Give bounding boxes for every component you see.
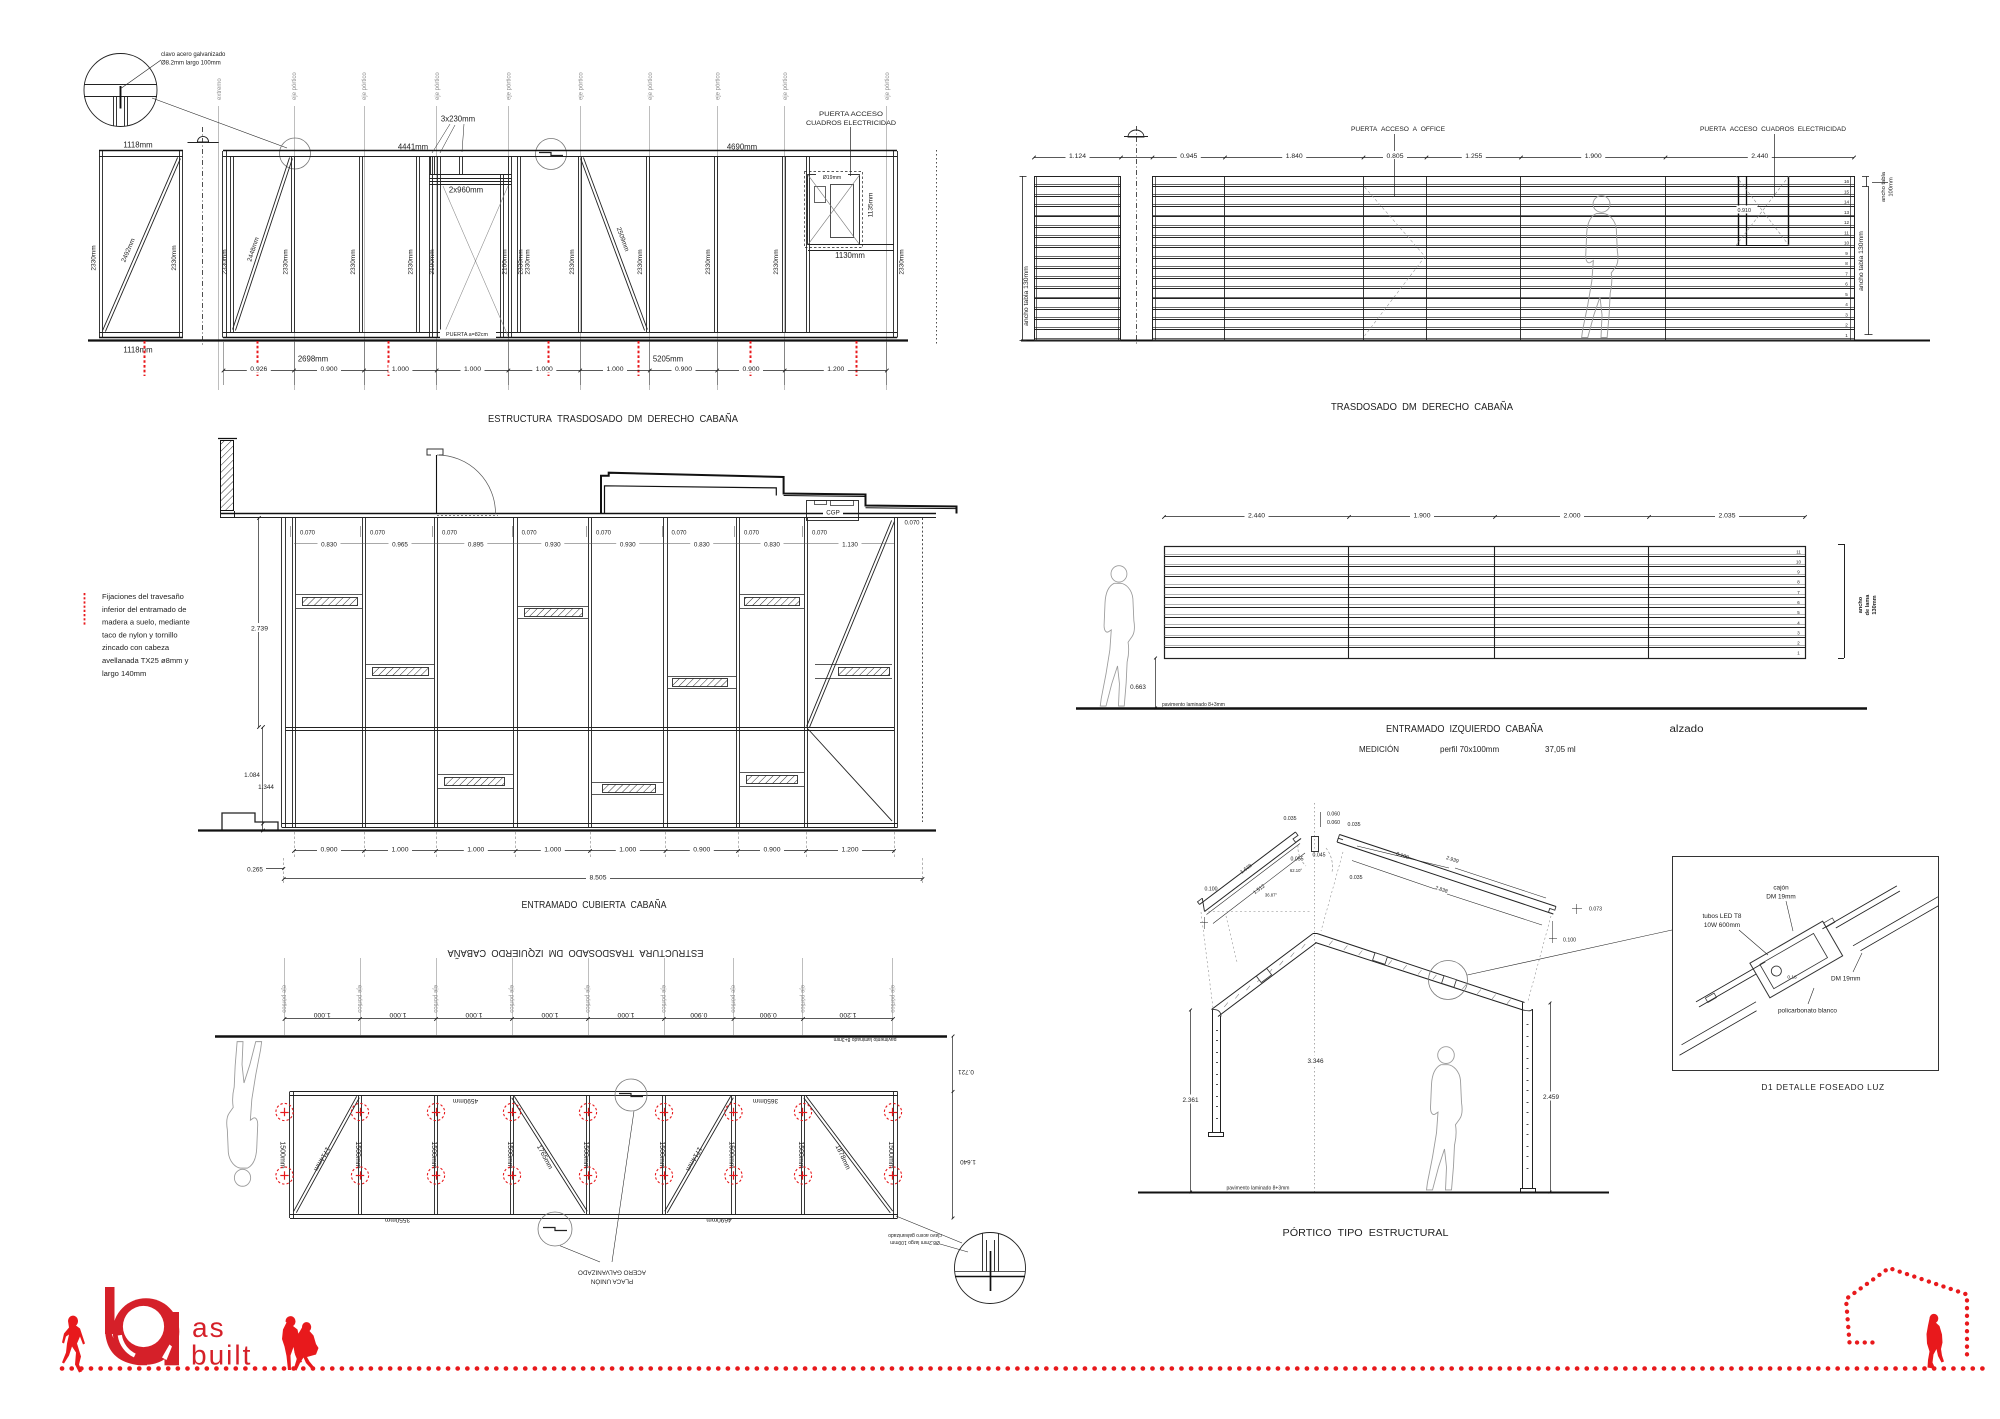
svg-text:1500mm: 1500mm bbox=[582, 1141, 589, 1168]
svg-text:8.505: 8.505 bbox=[589, 875, 606, 882]
svg-text:37,05 ml: 37,05 ml bbox=[1545, 745, 1576, 754]
svg-text:0.945: 0.945 bbox=[1180, 153, 1197, 160]
svg-text:2x960mm: 2x960mm bbox=[449, 186, 483, 195]
svg-text:eje pórtico: eje pórtico bbox=[508, 985, 514, 1013]
svg-text:0.070: 0.070 bbox=[904, 521, 920, 527]
svg-text:0.930: 0.930 bbox=[545, 541, 561, 548]
svg-text:eje pórtico: eje pórtico bbox=[584, 985, 590, 1013]
svg-text:1.344: 1.344 bbox=[258, 784, 274, 791]
svg-text:eje pórtico: eje pórtico bbox=[280, 985, 286, 1013]
svg-text:13: 13 bbox=[1844, 210, 1850, 215]
svg-text:0.900: 0.900 bbox=[320, 846, 337, 853]
svg-text:100mm: 100mm bbox=[1889, 177, 1895, 197]
svg-text:Ø8.2mm largo 100mm: Ø8.2mm largo 100mm bbox=[161, 61, 221, 67]
svg-text:1.130: 1.130 bbox=[842, 541, 858, 548]
svg-text:16: 16 bbox=[1844, 179, 1850, 184]
svg-text:3: 3 bbox=[1845, 312, 1848, 317]
svg-text:ESTRUCTURA TRASDOSADO DM DE: ESTRUCTURA TRASDOSADO DM DERECHO CABAÑA bbox=[488, 412, 738, 425]
svg-text:2330mm: 2330mm bbox=[171, 245, 178, 270]
svg-text:ENTRAMADO CUBIERTA CABAÑA: ENTRAMADO CUBIERTA CABAÑA bbox=[522, 898, 667, 911]
svg-text:1.200: 1.200 bbox=[841, 846, 858, 853]
svg-text:1.000: 1.000 bbox=[313, 1011, 330, 1018]
svg-text:pavimento laminado 8+3mm: pavimento laminado 8+3mm bbox=[1227, 1186, 1290, 1192]
svg-text:0.070: 0.070 bbox=[812, 531, 828, 537]
svg-text:5: 5 bbox=[1845, 292, 1848, 297]
svg-text:1500mm: 1500mm bbox=[279, 1141, 286, 1168]
svg-text:9: 9 bbox=[1845, 251, 1848, 256]
svg-text:2330mm: 2330mm bbox=[569, 249, 576, 274]
svg-text:ACERO GALVANIZADO: ACERO GALVANIZADO bbox=[578, 1269, 646, 1276]
svg-text:4690mm: 4690mm bbox=[706, 1216, 731, 1223]
svg-text:1.000: 1.000 bbox=[464, 366, 481, 373]
svg-text:0.900: 0.900 bbox=[693, 846, 710, 853]
svg-text:2.459: 2.459 bbox=[1543, 1094, 1559, 1101]
svg-text:130mm: 130mm bbox=[1872, 595, 1878, 614]
svg-text:tubos LED T8: tubos LED T8 bbox=[1703, 913, 1742, 920]
svg-text:1500mm: 1500mm bbox=[797, 1141, 804, 1168]
svg-text:0.073: 0.073 bbox=[1589, 907, 1602, 913]
svg-text:2330mm: 2330mm bbox=[350, 249, 357, 274]
svg-text:built: built bbox=[191, 1340, 252, 1371]
svg-text:1500mm: 1500mm bbox=[506, 1141, 513, 1168]
svg-text:1130mm: 1130mm bbox=[835, 251, 865, 260]
svg-text:3x230mm: 3x230mm bbox=[441, 115, 475, 124]
svg-text:2330mm: 2330mm bbox=[222, 249, 229, 274]
svg-text:largo 140mm: largo 140mm bbox=[102, 669, 146, 678]
svg-text:15: 15 bbox=[1844, 189, 1850, 194]
svg-text:ENTRAMADO IZQUIERDO CABAÑA: ENTRAMADO IZQUIERDO CABAÑA bbox=[1386, 722, 1543, 735]
svg-text:0.830: 0.830 bbox=[694, 541, 710, 548]
svg-text:4: 4 bbox=[1845, 302, 1848, 307]
svg-text:0.900: 0.900 bbox=[690, 1011, 707, 1018]
svg-text:2330mm: 2330mm bbox=[525, 249, 532, 274]
svg-text:1.000: 1.000 bbox=[541, 1011, 558, 1018]
svg-text:0.070: 0.070 bbox=[671, 531, 687, 537]
svg-text:0.070: 0.070 bbox=[300, 531, 316, 537]
svg-text:eje pórtico: eje pórtico bbox=[715, 72, 721, 100]
svg-text:PLACA UNIÓN: PLACA UNIÓN bbox=[590, 1278, 633, 1287]
svg-text:madera a suelo, mediante: madera a suelo, mediante bbox=[102, 618, 190, 627]
svg-text:7: 7 bbox=[1845, 271, 1848, 276]
svg-text:2.361: 2.361 bbox=[1183, 1097, 1199, 1104]
svg-text:0.265: 0.265 bbox=[247, 867, 263, 874]
svg-text:0.900: 0.900 bbox=[763, 846, 780, 853]
svg-text:CGP: CGP bbox=[826, 510, 839, 517]
svg-text:0.070: 0.070 bbox=[596, 531, 612, 537]
svg-text:PÓRTICO TIPO ESTRUCTURAL: PÓRTICO TIPO ESTRUCTURAL bbox=[1283, 1226, 1449, 1239]
svg-text:perfil 70x100mm: perfil 70x100mm bbox=[1440, 745, 1499, 754]
svg-text:0.070: 0.070 bbox=[370, 531, 386, 537]
svg-text:0.100: 0.100 bbox=[1205, 887, 1218, 893]
svg-text:2330mm: 2330mm bbox=[705, 249, 712, 274]
svg-text:1.084: 1.084 bbox=[244, 772, 260, 779]
svg-text:2.440: 2.440 bbox=[1751, 153, 1768, 160]
svg-text:1.000: 1.000 bbox=[536, 366, 553, 373]
svg-text:ancho tabla: ancho tabla bbox=[1881, 171, 1887, 202]
svg-text:clavo acero galvanizado: clavo acero galvanizado bbox=[888, 1232, 942, 1238]
svg-text:clavo acero galvanizado: clavo acero galvanizado bbox=[161, 52, 226, 58]
svg-text:11: 11 bbox=[1844, 230, 1849, 235]
svg-text:1500mm: 1500mm bbox=[430, 1141, 437, 1168]
svg-text:1.000: 1.000 bbox=[617, 1011, 634, 1018]
svg-text:2330mm: 2330mm bbox=[283, 249, 290, 274]
svg-text:0.100: 0.100 bbox=[1563, 938, 1576, 944]
svg-text:eje pórtico: eje pórtico bbox=[783, 72, 789, 100]
svg-text:1118mm: 1118mm bbox=[123, 346, 152, 355]
svg-text:1.900: 1.900 bbox=[1585, 153, 1602, 160]
svg-text:1.124: 1.124 bbox=[1069, 153, 1086, 160]
svg-text:1.000: 1.000 bbox=[544, 846, 561, 853]
svg-text:zincado con cabeza: zincado con cabeza bbox=[102, 643, 170, 652]
svg-text:1.000: 1.000 bbox=[465, 1011, 482, 1018]
svg-text:3550mm: 3550mm bbox=[385, 1216, 410, 1223]
svg-text:1.000: 1.000 bbox=[467, 846, 484, 853]
svg-text:1118mm: 1118mm bbox=[123, 141, 152, 150]
svg-text:1: 1 bbox=[1845, 333, 1848, 338]
svg-text:8: 8 bbox=[1845, 261, 1848, 266]
svg-text:0.930: 0.930 bbox=[620, 541, 636, 548]
svg-text:3.346: 3.346 bbox=[1308, 1058, 1324, 1065]
svg-text:Ø8.2mm largo 100mm: Ø8.2mm largo 100mm bbox=[890, 1239, 940, 1245]
svg-text:2100mm: 2100mm bbox=[429, 249, 436, 274]
svg-text:0.035: 0.035 bbox=[1350, 875, 1363, 881]
svg-text:1.000: 1.000 bbox=[389, 1011, 406, 1018]
svg-text:0.900: 0.900 bbox=[320, 366, 337, 373]
svg-text:1500mm: 1500mm bbox=[728, 1141, 735, 1168]
svg-text:1.000: 1.000 bbox=[392, 366, 409, 373]
svg-text:2698mm: 2698mm bbox=[298, 355, 328, 364]
svg-text:2330mm: 2330mm bbox=[899, 249, 906, 274]
svg-text:2330mm: 2330mm bbox=[637, 249, 644, 274]
svg-text:0.055: 0.055 bbox=[1291, 857, 1304, 863]
svg-text:eje pórtico: eje pórtico bbox=[362, 72, 368, 100]
svg-text:avellanada TX25 ø8mm y: avellanada TX25 ø8mm y bbox=[102, 656, 189, 665]
svg-text:2330mm: 2330mm bbox=[518, 249, 525, 274]
svg-text:1.200: 1.200 bbox=[839, 1011, 856, 1018]
svg-text:10: 10 bbox=[1844, 241, 1850, 246]
svg-text:11: 11 bbox=[1796, 549, 1801, 554]
svg-text:2330mm: 2330mm bbox=[91, 245, 98, 270]
svg-text:ancho tabla 130mm: ancho tabla 130mm bbox=[1023, 266, 1030, 326]
svg-text:de lama: de lama bbox=[1865, 594, 1871, 616]
svg-text:1.840: 1.840 bbox=[1286, 153, 1303, 160]
svg-text:eje pórtico: eje pórtico bbox=[889, 985, 895, 1013]
svg-text:0.060: 0.060 bbox=[1327, 812, 1340, 818]
svg-text:eje pórtico: eje pórtico bbox=[799, 985, 805, 1013]
svg-text:0.16: 0.16 bbox=[1787, 975, 1797, 981]
svg-text:2100mm: 2100mm bbox=[502, 249, 509, 274]
svg-text:cajón: cajón bbox=[1773, 885, 1789, 892]
svg-text:Ø19mm: Ø19mm bbox=[823, 175, 841, 181]
svg-text:extremo: extremo bbox=[217, 78, 223, 100]
svg-text:PUERTA a=82cm: PUERTA a=82cm bbox=[446, 332, 488, 338]
svg-text:4690mm: 4690mm bbox=[727, 143, 757, 152]
svg-text:1.200: 1.200 bbox=[827, 366, 844, 373]
svg-text:TRASDOSADO DM DERECHO CABAÑ: TRASDOSADO DM DERECHO CABAÑA bbox=[1331, 400, 1513, 413]
svg-text:pavimento laminado 8+3mm: pavimento laminado 8+3mm bbox=[834, 1036, 897, 1042]
svg-text:1.640: 1.640 bbox=[960, 1158, 976, 1165]
svg-text:2330mm: 2330mm bbox=[408, 249, 415, 274]
svg-text:1.000: 1.000 bbox=[606, 366, 623, 373]
svg-text:2.000: 2.000 bbox=[1563, 512, 1580, 519]
svg-text:5205mm: 5205mm bbox=[653, 355, 683, 364]
svg-text:pavimento laminado 8+3mm: pavimento laminado 8+3mm bbox=[1162, 702, 1225, 708]
svg-text:2.035: 2.035 bbox=[1718, 512, 1735, 519]
svg-text:1500mm: 1500mm bbox=[658, 1141, 665, 1168]
svg-text:0.035: 0.035 bbox=[1348, 822, 1361, 828]
svg-text:eje pórtico: eje pórtico bbox=[885, 72, 891, 100]
svg-text:0.070: 0.070 bbox=[522, 531, 538, 537]
svg-text:0.895: 0.895 bbox=[468, 541, 484, 548]
svg-text:4590mm: 4590mm bbox=[453, 1097, 478, 1104]
svg-text:inferior del entramado de: inferior del entramado de bbox=[102, 605, 186, 614]
svg-text:4441mm: 4441mm bbox=[398, 143, 428, 152]
svg-text:0.900: 0.900 bbox=[675, 366, 692, 373]
svg-text:10: 10 bbox=[1796, 559, 1801, 564]
svg-text:ancho tabla 130mm: ancho tabla 130mm bbox=[1858, 231, 1865, 291]
svg-text:12: 12 bbox=[1844, 220, 1850, 225]
svg-text:3650mm: 3650mm bbox=[753, 1097, 778, 1104]
svg-text:1.000: 1.000 bbox=[391, 846, 408, 853]
svg-text:PUERTA ACCESO CUADROS ELECT: PUERTA ACCESO CUADROS ELECTRICIDAD bbox=[1700, 126, 1846, 133]
svg-text:eje pórtico: eje pórtico bbox=[660, 985, 666, 1013]
svg-text:policarbonato blanco: policarbonato blanco bbox=[1778, 1008, 1837, 1015]
svg-text:MEDICIÓN: MEDICIÓN bbox=[1359, 745, 1399, 754]
svg-text:0.663: 0.663 bbox=[1130, 684, 1146, 691]
svg-text:1.000: 1.000 bbox=[619, 846, 636, 853]
svg-text:eje pórtico: eje pórtico bbox=[356, 985, 362, 1013]
svg-text:0.830: 0.830 bbox=[321, 541, 337, 548]
svg-text:2: 2 bbox=[1845, 323, 1848, 328]
svg-text:0.070: 0.070 bbox=[442, 531, 458, 537]
svg-text:1135mm: 1135mm bbox=[868, 193, 875, 218]
svg-text:0.070: 0.070 bbox=[744, 531, 760, 537]
svg-text:0.910: 0.910 bbox=[1738, 208, 1752, 214]
svg-text:ancho: ancho bbox=[1858, 596, 1864, 613]
svg-text:1500mm: 1500mm bbox=[354, 1141, 361, 1168]
svg-text:as: as bbox=[192, 1312, 226, 1343]
svg-text:0.926: 0.926 bbox=[250, 366, 267, 373]
svg-text:6: 6 bbox=[1845, 282, 1848, 287]
svg-text:0.805: 0.805 bbox=[1386, 153, 1403, 160]
svg-text:0.035: 0.035 bbox=[1284, 816, 1297, 822]
svg-text:36.87°: 36.87° bbox=[1265, 893, 1277, 898]
svg-text:D1 DETALLE FOSEADO LUZ: D1 DETALLE FOSEADO LUZ bbox=[1761, 1082, 1884, 1092]
svg-text:0.965: 0.965 bbox=[392, 541, 408, 548]
svg-text:0.060: 0.060 bbox=[1327, 820, 1340, 826]
svg-text:PUERTA ACCESO: PUERTA ACCESO bbox=[819, 111, 883, 118]
svg-text:14: 14 bbox=[1844, 200, 1850, 205]
svg-text:eje pórtico: eje pórtico bbox=[292, 72, 298, 100]
svg-text:2330mm: 2330mm bbox=[773, 249, 780, 274]
svg-text:DM 19mm: DM 19mm bbox=[1831, 976, 1860, 983]
svg-text:0.830: 0.830 bbox=[764, 541, 780, 548]
svg-text:eje pórtico: eje pórtico bbox=[578, 72, 584, 100]
svg-text:2.739: 2.739 bbox=[251, 626, 268, 633]
svg-text:taco de nylon y tornillo: taco de nylon y tornillo bbox=[102, 630, 178, 639]
svg-text:0.045: 0.045 bbox=[1313, 853, 1326, 859]
svg-text:DM 19mm: DM 19mm bbox=[1766, 894, 1795, 901]
svg-text:0.900: 0.900 bbox=[759, 1011, 776, 1018]
svg-text:ESTRUCTURA TRASDOSADO DM IZ: ESTRUCTURA TRASDOSADO DM IZQUIERDO CABAÑ… bbox=[447, 947, 703, 960]
svg-text:10W 600mm: 10W 600mm bbox=[1704, 922, 1740, 929]
svg-text:eje pórtico: eje pórtico bbox=[729, 985, 735, 1013]
svg-text:Fijaciones del travesaño: Fijaciones del travesaño bbox=[102, 592, 184, 601]
svg-text:0.900: 0.900 bbox=[742, 366, 759, 373]
svg-text:eje pórtico: eje pórtico bbox=[432, 985, 438, 1013]
svg-text:CUADROS ELECTRICIDAD: CUADROS ELECTRICIDAD bbox=[806, 120, 896, 127]
svg-text:1500mm: 1500mm bbox=[887, 1141, 894, 1168]
svg-text:62.10°: 62.10° bbox=[1290, 868, 1302, 873]
svg-text:1.900: 1.900 bbox=[1413, 512, 1430, 519]
svg-text:PUERTA ACCESO A OFFICE: PUERTA ACCESO A OFFICE bbox=[1351, 126, 1446, 133]
svg-text:eje pórtico: eje pórtico bbox=[648, 72, 654, 100]
svg-text:0.721: 0.721 bbox=[958, 1068, 974, 1075]
svg-text:eje pórtico: eje pórtico bbox=[507, 72, 513, 100]
svg-text:2.440: 2.440 bbox=[1248, 512, 1265, 519]
svg-text:alzado: alzado bbox=[1670, 724, 1705, 735]
svg-text:eje pórtico: eje pórtico bbox=[435, 72, 441, 100]
svg-text:1.255: 1.255 bbox=[1465, 153, 1482, 160]
